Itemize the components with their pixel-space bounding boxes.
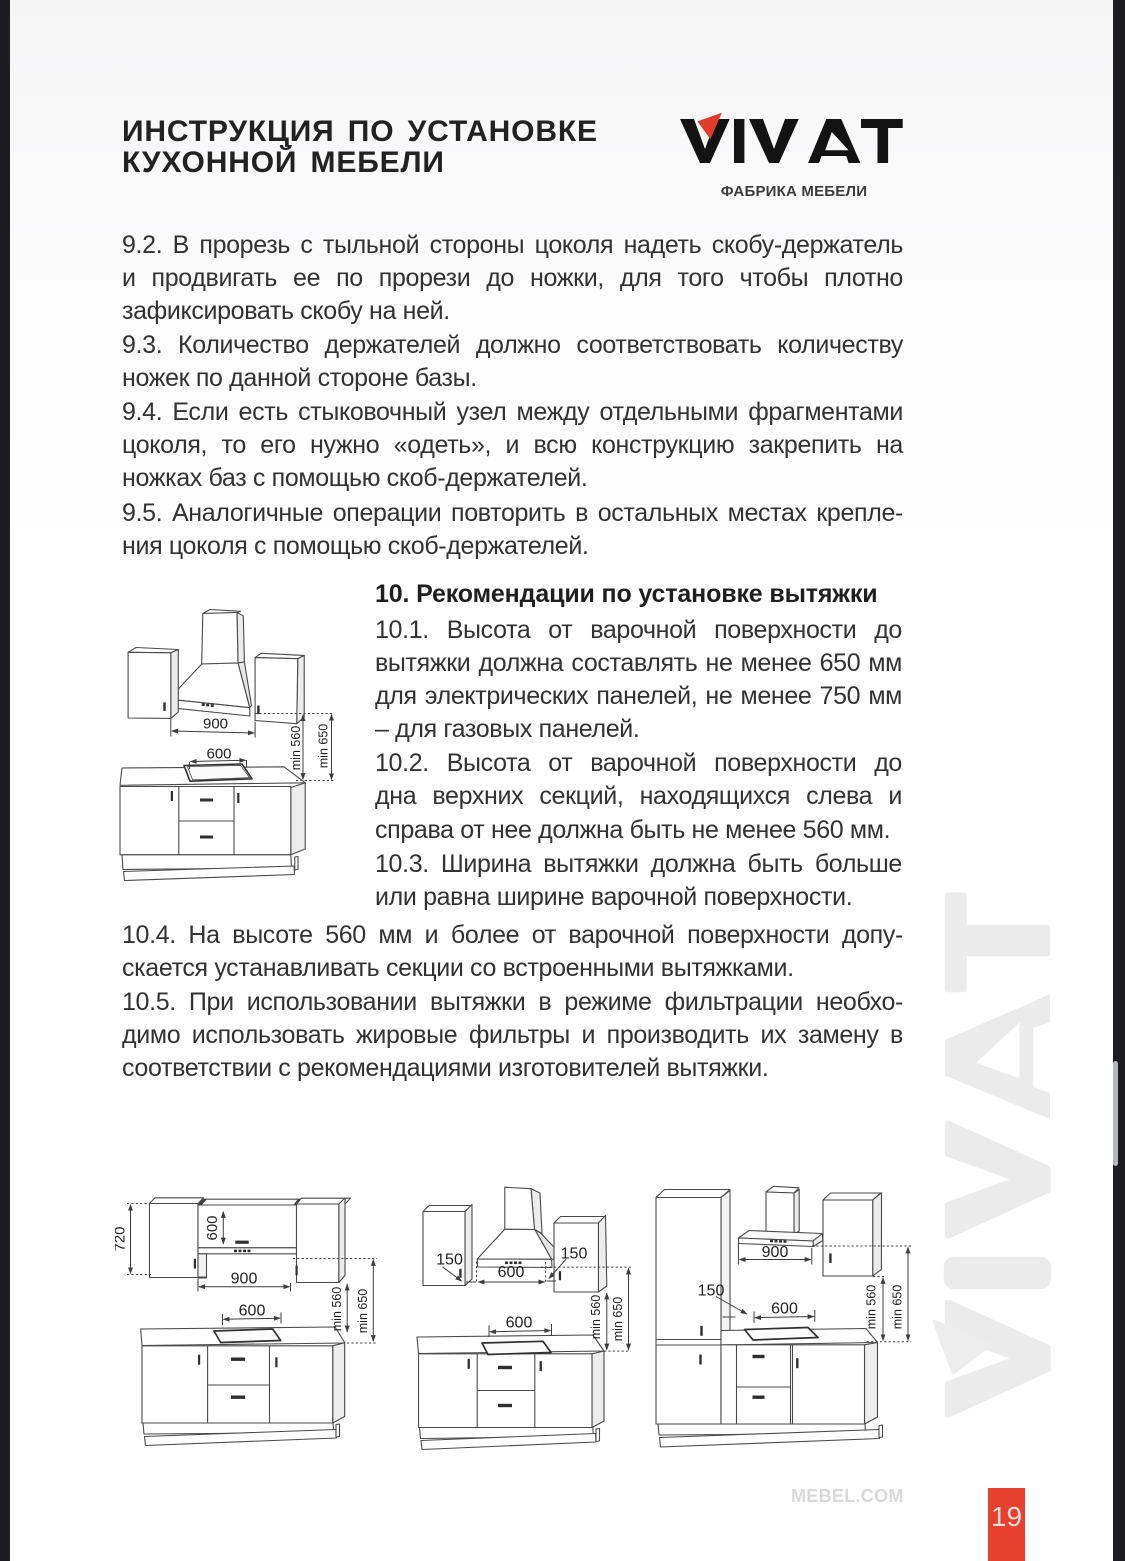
svg-text:600: 600 (204, 1215, 221, 1240)
svg-text:720: 720 (115, 1226, 129, 1251)
svg-text:min 560: min 560 (865, 1285, 879, 1330)
svg-text:150: 150 (436, 1252, 463, 1269)
svg-text:600: 600 (239, 1303, 266, 1320)
svg-text:min 560: min 560 (589, 1295, 603, 1340)
svg-text:min 560: min 560 (330, 1287, 344, 1332)
svg-text:900: 900 (231, 1271, 258, 1288)
svg-text:900: 900 (762, 1244, 789, 1261)
svg-text:600: 600 (506, 1315, 533, 1332)
svg-text:min 650: min 650 (356, 1289, 370, 1334)
svg-text:min 650: min 650 (891, 1285, 905, 1330)
svg-text:min 650: min 650 (317, 724, 331, 769)
svg-text:min 560: min 560 (289, 726, 303, 771)
svg-text:min 650: min 650 (611, 1297, 625, 1342)
svg-text:600: 600 (771, 1301, 798, 1318)
svg-text:150: 150 (698, 1283, 725, 1300)
svg-text:900: 900 (203, 716, 228, 733)
svg-text:150: 150 (561, 1246, 588, 1263)
svg-text:600: 600 (498, 1264, 525, 1281)
svg-text:600: 600 (206, 746, 231, 763)
